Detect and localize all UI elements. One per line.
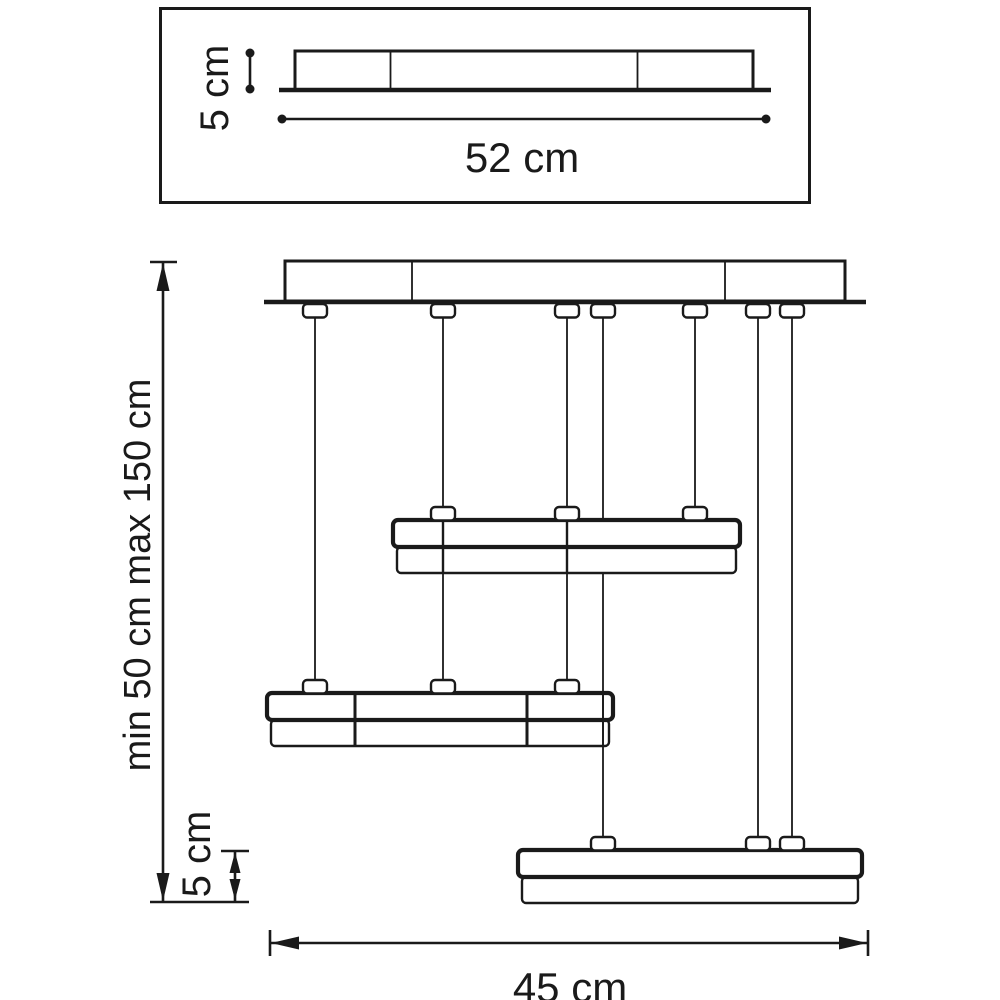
shade-body: [518, 850, 862, 877]
dimension-end-dot: [762, 115, 771, 124]
fixture-width-dimension: 45 cm: [270, 930, 868, 1000]
cable-cap: [746, 304, 770, 318]
dimension-end-dot: [246, 49, 255, 58]
shade-diffuser: [271, 720, 609, 746]
cable-cap: [431, 507, 455, 521]
arrowhead-down: [230, 879, 241, 900]
drop-range-label: min 50 cm max 150 cm: [117, 379, 159, 772]
shade-body: [267, 693, 613, 720]
tier-1-shade: [393, 520, 740, 573]
tier-3-shade: [518, 850, 862, 903]
arrowhead-left: [271, 937, 299, 950]
side-view: min 50 cm max 150 cm 5 cm 45 cm: [117, 261, 868, 1000]
cable-cap: [746, 837, 770, 851]
tier-2-shade: [267, 693, 613, 746]
cable-cap: [303, 680, 327, 694]
pendant-dimension-drawing: 5 cm 52 cm: [0, 0, 1000, 1000]
canopy-width-dimension: 52 cm: [278, 115, 771, 182]
diagram-canvas: 5 cm 52 cm: [0, 0, 1000, 1000]
cable-cap: [555, 507, 579, 521]
cable-cap: [683, 304, 707, 318]
shade-height-label: 5 cm: [175, 811, 219, 898]
cable-cap: [591, 304, 615, 318]
cable-cap: [683, 507, 707, 521]
dimension-end-dot: [278, 115, 287, 124]
arrowhead-right: [839, 937, 867, 950]
dimension-end-dot: [246, 85, 255, 94]
cable-cap: [780, 837, 804, 851]
shade-diffuser: [522, 877, 858, 903]
cable-cap: [555, 304, 579, 318]
cable-caps: [303, 304, 804, 851]
canopy-width-label: 52 cm: [465, 134, 579, 181]
arrowhead-up: [157, 263, 170, 291]
fixture-width-label: 45 cm: [513, 964, 627, 1000]
canopy-height-label: 5 cm: [193, 45, 237, 132]
cable-cap: [303, 304, 327, 318]
canopy-bar: [295, 51, 753, 90]
cable-cap: [431, 304, 455, 318]
canopy-height-dimension: 5 cm: [193, 45, 255, 132]
drop-height-dimension: min 50 cm max 150 cm: [117, 262, 249, 902]
top-view-panel: 5 cm 52 cm: [161, 9, 810, 203]
arrowhead-down: [157, 873, 170, 901]
cable-cap: [431, 680, 455, 694]
canopy-plate: [285, 261, 845, 301]
cable-cap: [780, 304, 804, 318]
cable-cap: [591, 837, 615, 851]
canopy-top-view: [279, 51, 771, 90]
arrowhead-up: [230, 852, 241, 873]
suspension-cables: [315, 316, 792, 839]
cable-cap: [555, 680, 579, 694]
shade-height-dimension: 5 cm: [175, 811, 249, 901]
ceiling-canopy: [264, 261, 866, 302]
